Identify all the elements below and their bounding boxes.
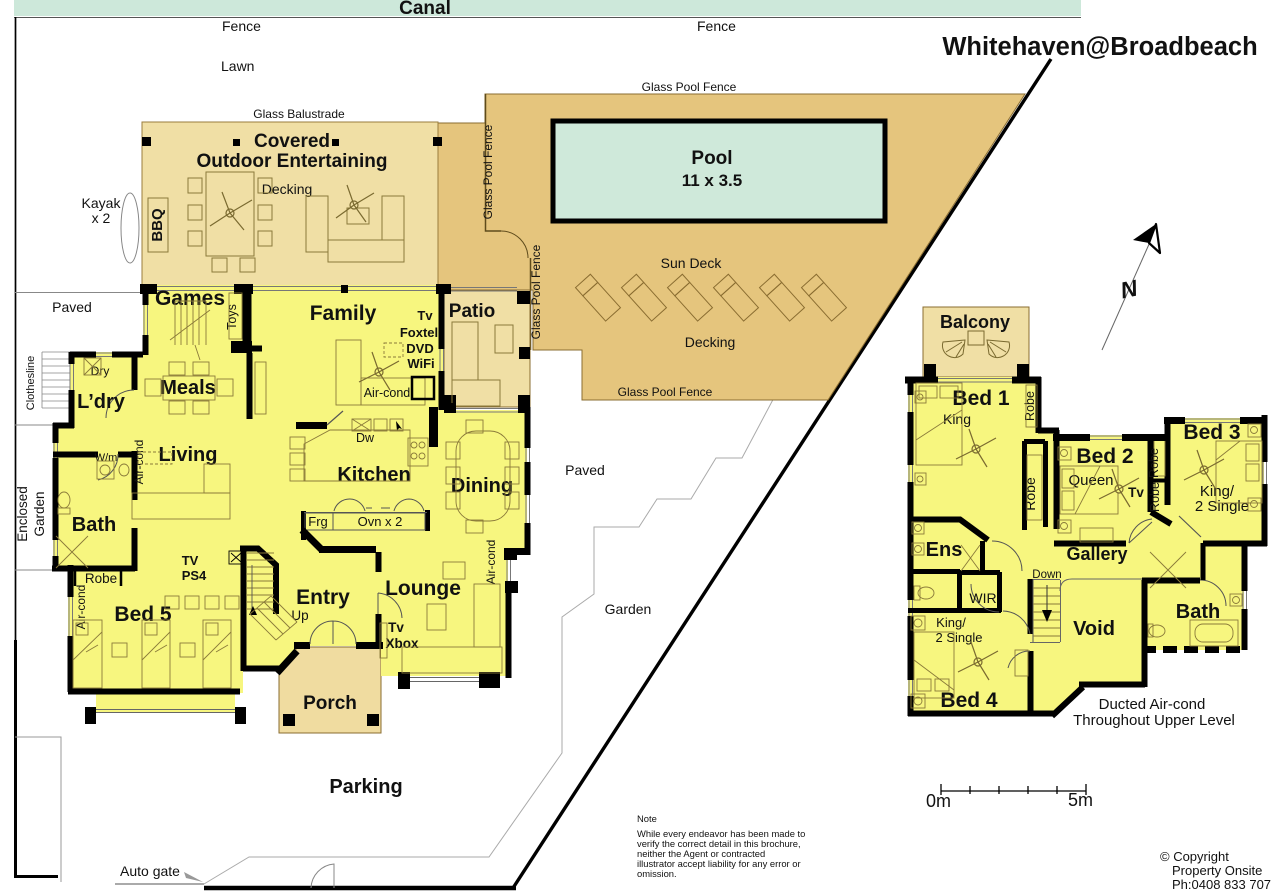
svg-text:Gallery: Gallery <box>1066 544 1127 564</box>
svg-text:Glass Pool Fence: Glass Pool Fence <box>618 385 713 399</box>
svg-text:Paved: Paved <box>52 299 92 315</box>
svg-text:Robe: Robe <box>85 571 117 586</box>
svg-text:Fence: Fence <box>697 18 736 34</box>
svg-text:L’dry: L’dry <box>77 391 126 413</box>
svg-text:Paved: Paved <box>565 462 605 478</box>
svg-text:Ph:0408 833 707: Ph:0408 833 707 <box>1172 877 1271 892</box>
svg-text:Glass Pool Fence: Glass Pool Fence <box>481 124 495 219</box>
svg-text:Lawn: Lawn <box>221 58 254 74</box>
svg-text:Tv: Tv <box>417 308 433 323</box>
svg-text:Robe: Robe <box>1023 391 1037 421</box>
svg-text:Dw: Dw <box>356 431 375 445</box>
svg-text:Decking: Decking <box>262 181 313 197</box>
svg-text:Toys: Toys <box>225 304 239 330</box>
svg-text:Throughout Upper Level: Throughout Upper Level <box>1073 712 1235 729</box>
svg-text:Garden: Garden <box>32 491 47 536</box>
svg-text:Air-cond: Air-cond <box>364 386 411 400</box>
svg-text:Clothesline: Clothesline <box>25 356 37 410</box>
svg-text:Down: Down <box>1032 569 1061 581</box>
svg-text:Enclosed: Enclosed <box>15 486 30 542</box>
svg-text:Whitehaven@Broadbeach: Whitehaven@Broadbeach <box>942 33 1257 61</box>
svg-text:Robe: Robe <box>1147 448 1161 478</box>
svg-text:Fence: Fence <box>222 18 261 34</box>
svg-text:Glass Pool Fence: Glass Pool Fence <box>529 244 543 339</box>
svg-text:Bed 1: Bed 1 <box>952 387 1010 410</box>
svg-text:Entry: Entry <box>296 586 350 609</box>
svg-text:Air-cond: Air-cond <box>132 440 146 485</box>
svg-text:King/: King/ <box>936 615 966 630</box>
svg-text:Decking: Decking <box>685 334 736 350</box>
svg-text:Robe: Robe <box>1022 477 1038 511</box>
svg-text:Patio: Patio <box>449 301 495 322</box>
svg-text:WiFi: WiFi <box>407 356 434 371</box>
svg-text:Ducted Air-cond: Ducted Air-cond <box>1099 696 1206 713</box>
svg-text:Tv: Tv <box>388 620 404 635</box>
svg-text:DVD: DVD <box>406 341 433 356</box>
svg-text:Bath: Bath <box>72 514 116 536</box>
svg-text:Property Onsite: Property Onsite <box>1172 863 1262 878</box>
svg-text:Queen: Queen <box>1068 472 1113 489</box>
svg-text:Ovn x 2: Ovn x 2 <box>358 514 403 529</box>
svg-text:Porch: Porch <box>303 693 357 714</box>
svg-text:Sun Deck: Sun Deck <box>661 255 723 271</box>
svg-text:Glass Balustrade: Glass Balustrade <box>253 107 345 121</box>
svg-text:WIR: WIR <box>969 590 996 606</box>
svg-text:Bed 2: Bed 2 <box>1076 445 1133 468</box>
svg-text:Bed 3: Bed 3 <box>1183 421 1240 444</box>
svg-text:Covered: Covered <box>254 131 330 152</box>
svg-text:Void: Void <box>1073 618 1115 640</box>
svg-text:Up: Up <box>291 608 308 623</box>
svg-text:Air-cond: Air-cond <box>484 540 498 585</box>
svg-text:Pool: Pool <box>691 148 732 169</box>
svg-text:Note: Note <box>637 813 657 824</box>
svg-text:omission.: omission. <box>637 868 677 879</box>
svg-text:Outdoor Entertaining: Outdoor Entertaining <box>196 151 387 172</box>
svg-text:Garden: Garden <box>605 601 652 617</box>
svg-text:Ens: Ens <box>926 539 963 561</box>
svg-text:Meals: Meals <box>160 377 216 399</box>
svg-text:0m: 0m <box>926 791 951 811</box>
svg-text:PS4: PS4 <box>182 568 207 583</box>
svg-text:Living: Living <box>159 444 218 466</box>
svg-text:TV: TV <box>182 553 199 568</box>
svg-text:2 Single: 2 Single <box>1195 498 1249 515</box>
svg-text:Parking: Parking <box>329 776 402 798</box>
svg-text:Games: Games <box>155 287 225 310</box>
svg-text:Bed 5: Bed 5 <box>114 603 172 626</box>
svg-text:Canal: Canal <box>399 0 451 19</box>
svg-text:11 x 3.5: 11 x 3.5 <box>682 171 743 190</box>
svg-text:x 2: x 2 <box>92 210 111 226</box>
svg-text:Frg: Frg <box>308 514 328 529</box>
svg-text:Lounge: Lounge <box>385 577 461 600</box>
svg-text:© Copyright: © Copyright <box>1160 849 1229 864</box>
svg-text:Kayak: Kayak <box>82 195 122 211</box>
svg-text:BBQ: BBQ <box>149 208 166 242</box>
svg-text:Robe: Robe <box>1148 482 1162 512</box>
svg-text:Family: Family <box>310 302 377 325</box>
svg-text:Glass Pool Fence: Glass Pool Fence <box>642 80 737 94</box>
svg-text:Balcony: Balcony <box>940 312 1010 332</box>
svg-text:Auto gate: Auto gate <box>120 863 180 879</box>
svg-text:Kitchen: Kitchen <box>337 464 410 486</box>
svg-text:Foxtel: Foxtel <box>400 325 438 340</box>
svg-text:5m: 5m <box>1068 790 1093 810</box>
svg-text:Bed 4: Bed 4 <box>940 689 998 712</box>
svg-text:Tv: Tv <box>1128 485 1144 500</box>
